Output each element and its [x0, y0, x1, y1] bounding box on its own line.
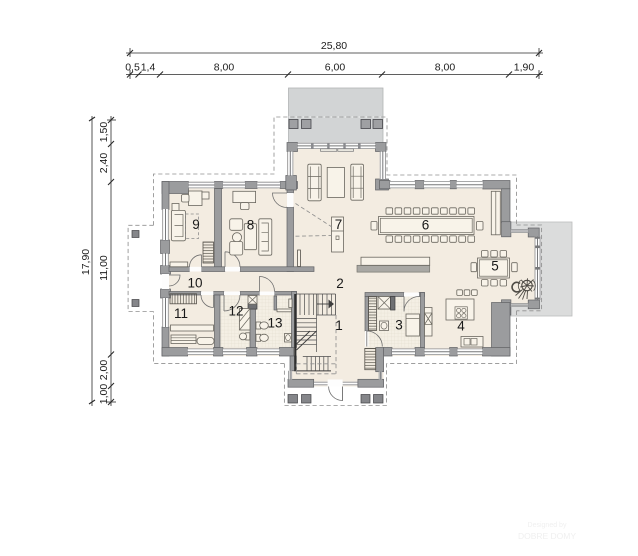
svg-text:5: 5 [491, 259, 499, 274]
svg-text:12: 12 [228, 304, 243, 319]
svg-text:8,00: 8,00 [214, 62, 235, 74]
svg-text:8: 8 [247, 218, 255, 233]
svg-text:6: 6 [422, 218, 430, 233]
svg-text:4: 4 [457, 319, 465, 334]
svg-text:7: 7 [335, 217, 343, 232]
svg-text:Designed by: Designed by [528, 522, 567, 529]
svg-text:8,00: 8,00 [435, 62, 456, 74]
svg-text:0,5: 0,5 [125, 62, 140, 74]
svg-text:11,00: 11,00 [98, 255, 110, 281]
svg-text:1,4: 1,4 [141, 62, 156, 74]
svg-text:2,40: 2,40 [98, 153, 110, 174]
svg-text:13: 13 [267, 316, 282, 331]
svg-text:10: 10 [187, 276, 202, 291]
svg-text:3: 3 [395, 318, 403, 333]
svg-text:9: 9 [192, 217, 200, 232]
svg-text:1,00: 1,00 [98, 384, 110, 405]
svg-text:25,80: 25,80 [321, 40, 347, 52]
svg-text:17,90: 17,90 [80, 249, 92, 275]
svg-text:2: 2 [336, 276, 344, 291]
svg-text:2,00: 2,00 [98, 360, 110, 381]
svg-text:1,90: 1,90 [514, 62, 535, 74]
svg-text:DOBRE DOMY: DOBRE DOMY [518, 531, 576, 541]
svg-text:1: 1 [335, 318, 343, 333]
svg-text:11: 11 [174, 306, 188, 321]
svg-text:1,50: 1,50 [98, 122, 110, 143]
svg-text:6,00: 6,00 [325, 62, 346, 74]
